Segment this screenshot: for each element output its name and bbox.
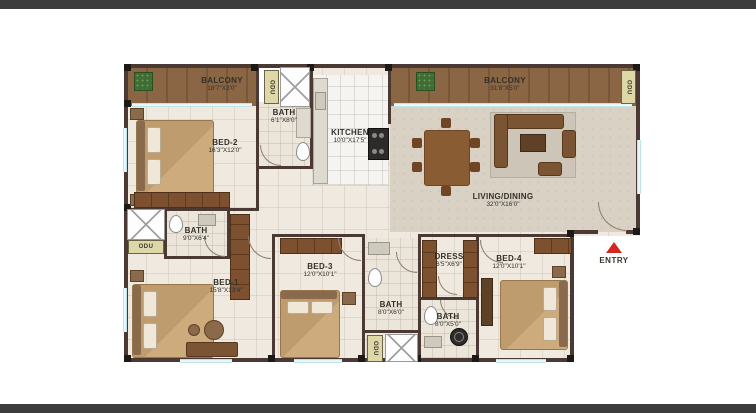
round-table (204, 320, 224, 340)
bath-top-label: BATH 6'1"X8'0" (252, 108, 316, 125)
bed2-bed (136, 120, 214, 194)
room-name: BED-2 (170, 138, 280, 147)
window (180, 359, 232, 363)
odu-label: ODU (139, 244, 154, 250)
window (637, 140, 641, 194)
wall-post (472, 355, 479, 362)
nightstand (342, 292, 356, 305)
bed4-bed (500, 280, 568, 350)
room-dims: 18'7"X3'0" (162, 85, 282, 92)
entry-label: ENTRY (590, 256, 638, 265)
toilet (368, 268, 382, 287)
window (294, 359, 342, 363)
bed-pillow (543, 317, 557, 341)
duct-shaft (280, 67, 310, 107)
dining-chair (470, 162, 480, 172)
room-dims: 8'0"X6'0" (362, 309, 420, 316)
window (394, 103, 632, 107)
floor-plan-canvas: ODU ODU ODU ODU (0, 0, 756, 413)
wall-post (124, 64, 131, 71)
kitchen-sink (315, 92, 326, 110)
sofa (494, 114, 508, 168)
bed1-label: BED-1 15'8"X13'4" (176, 278, 276, 295)
nightstand (130, 270, 144, 282)
bed4-wardrobe (534, 238, 572, 254)
bed-headboard (559, 281, 567, 347)
wall-segment (362, 234, 365, 358)
window (132, 103, 252, 107)
dining-chair (470, 138, 480, 148)
kitchen-label: KITCHEN 10'0"X17'5" (314, 128, 386, 145)
room-name: BATH (166, 226, 226, 235)
window (496, 359, 546, 363)
room-name: BALCONY (430, 76, 580, 85)
wall-post (124, 100, 131, 107)
burner (372, 149, 377, 154)
room-dims: 15'8"X13'4" (176, 287, 276, 294)
top-frame-bar (0, 0, 756, 9)
wall-post (124, 355, 131, 362)
dining-table (424, 130, 470, 186)
plant (134, 72, 153, 91)
wall-post (567, 355, 574, 362)
duct-shaft (127, 209, 165, 240)
wall-segment (364, 330, 420, 333)
room-dims: 32'0"X16'0" (428, 201, 578, 208)
room-dims: 6'1"X8'0" (252, 117, 316, 124)
wall-post (633, 228, 640, 235)
room-name: BATH (362, 300, 420, 309)
dress-wardrobe (422, 240, 437, 298)
sink (368, 242, 390, 255)
room-dims: 12'0"X10'1" (282, 271, 358, 278)
tv-console (481, 278, 493, 326)
wall-segment (388, 64, 391, 124)
exterior-area (574, 236, 640, 362)
room-name: KITCHEN (314, 128, 386, 137)
bed-pillow (147, 127, 161, 153)
odu-unit: ODU (367, 335, 383, 362)
wall-segment (418, 234, 478, 237)
bed3-bed (280, 290, 340, 358)
entry-arrow-icon (606, 242, 622, 253)
armchair (562, 130, 576, 158)
odu-label: ODU (626, 80, 632, 95)
bed-pillow (143, 291, 157, 317)
bed-headboard (281, 291, 337, 299)
bed-pillow (311, 301, 333, 314)
bed-pillow (287, 301, 309, 314)
wall-post (385, 64, 392, 71)
room-dims: 6'5"X6'9" (419, 261, 479, 268)
bed3-wardrobe (280, 238, 342, 254)
nightstand (130, 108, 144, 120)
room-name: BED-4 (474, 254, 544, 263)
wall-segment (256, 166, 313, 169)
balcony-right-label: BALCONY 31'8"X5'0" (430, 76, 580, 93)
wall-post (567, 230, 574, 237)
stool (188, 324, 200, 336)
room-name: BED-3 (282, 262, 358, 271)
bath-bottom-mid-label: BATH 8'0"X6'0" (362, 300, 420, 317)
wall-segment (272, 236, 275, 358)
room-name: DRESS (419, 252, 479, 261)
room-dims: 16'3"X12'0" (170, 147, 280, 154)
window (123, 128, 127, 172)
odu-unit: ODU (621, 70, 636, 104)
wall-post (358, 355, 365, 362)
bath-mid-label: BATH 9'0"X6'4" (166, 226, 226, 243)
dining-chair (441, 118, 451, 128)
balcony-left-label: BALCONY 18'7"X3'0" (162, 76, 282, 93)
wall-segment (124, 64, 640, 68)
bed-pillow (147, 159, 161, 185)
bed4-label: BED-4 12'0"X10'1" (474, 254, 544, 271)
armchair (538, 162, 562, 176)
bed-pillow (143, 323, 157, 349)
room-dims: 12'0"X10'1" (474, 263, 544, 270)
coffee-table (520, 134, 546, 152)
window (123, 288, 127, 332)
bed-headboard (133, 285, 141, 355)
nightstand (552, 266, 566, 278)
room-name: BATH (252, 108, 316, 117)
bed2-wardrobe (134, 192, 230, 208)
odu-label: ODU (372, 341, 378, 356)
dining-chair (412, 138, 422, 148)
bed3-label: BED-3 12'0"X10'1" (282, 262, 358, 279)
room-name: BALCONY (162, 76, 282, 85)
odu-unit: ODU (128, 240, 164, 254)
wall-segment (476, 234, 572, 237)
room-name: BED-1 (176, 278, 276, 287)
room-name: LIVING/DINING (428, 192, 578, 201)
bench (186, 342, 238, 357)
wall-post (251, 64, 258, 71)
wall-post (268, 355, 275, 362)
bath-bottom-right-label: BATH 8'0"X5'0" (420, 312, 476, 329)
sink (424, 336, 442, 348)
wall-segment (572, 230, 598, 234)
living-dining-label: LIVING/DINING 32'0"X16'0" (428, 192, 578, 209)
bed2-label: BED-2 16'3"X12'0" (170, 138, 280, 155)
sink (198, 214, 216, 226)
room-dims: 8'0"X5'0" (420, 321, 476, 328)
duct-shaft (385, 334, 418, 362)
washing-machine (450, 328, 468, 346)
dress-label: DRESS 6'5"X6'9" (419, 252, 479, 269)
bed-headboard (137, 121, 145, 191)
room-dims: 31'8"X5'0" (430, 85, 580, 92)
bottom-frame-bar (0, 404, 756, 413)
room-dims: 10'0"X17'5" (314, 137, 386, 144)
room-dims: 9'0"X6'4" (166, 235, 226, 242)
dining-chair (412, 162, 422, 172)
bed-pillow (543, 287, 557, 311)
room-name: BATH (420, 312, 476, 321)
toilet (296, 142, 310, 161)
wall-segment (272, 234, 364, 237)
burner (379, 149, 384, 154)
